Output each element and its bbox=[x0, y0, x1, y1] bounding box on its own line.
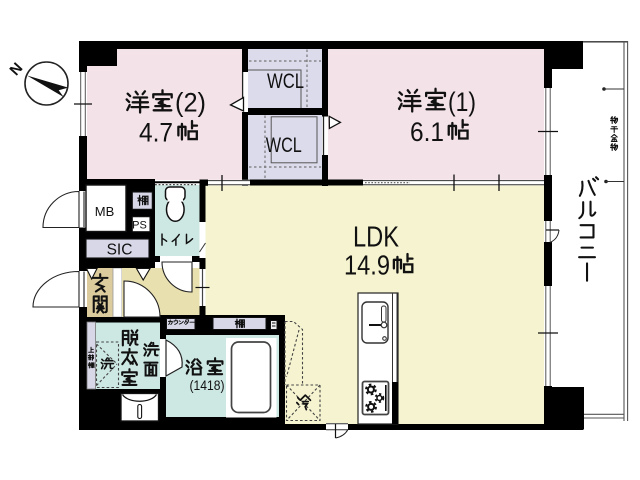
svg-text:(2): (2) bbox=[175, 88, 206, 118]
svg-text:(1418): (1418) bbox=[190, 378, 225, 393]
svg-text:MB: MB bbox=[95, 204, 115, 219]
svg-text:14.9: 14.9 bbox=[344, 250, 390, 281]
svg-text:(1): (1) bbox=[448, 87, 476, 117]
svg-text:WCL: WCL bbox=[266, 134, 302, 157]
svg-text:PS: PS bbox=[132, 219, 147, 231]
svg-text:SIC: SIC bbox=[107, 242, 133, 259]
svg-text:6.1: 6.1 bbox=[410, 117, 444, 147]
svg-text:WCL: WCL bbox=[267, 70, 304, 93]
svg-text:4.7: 4.7 bbox=[139, 118, 173, 148]
